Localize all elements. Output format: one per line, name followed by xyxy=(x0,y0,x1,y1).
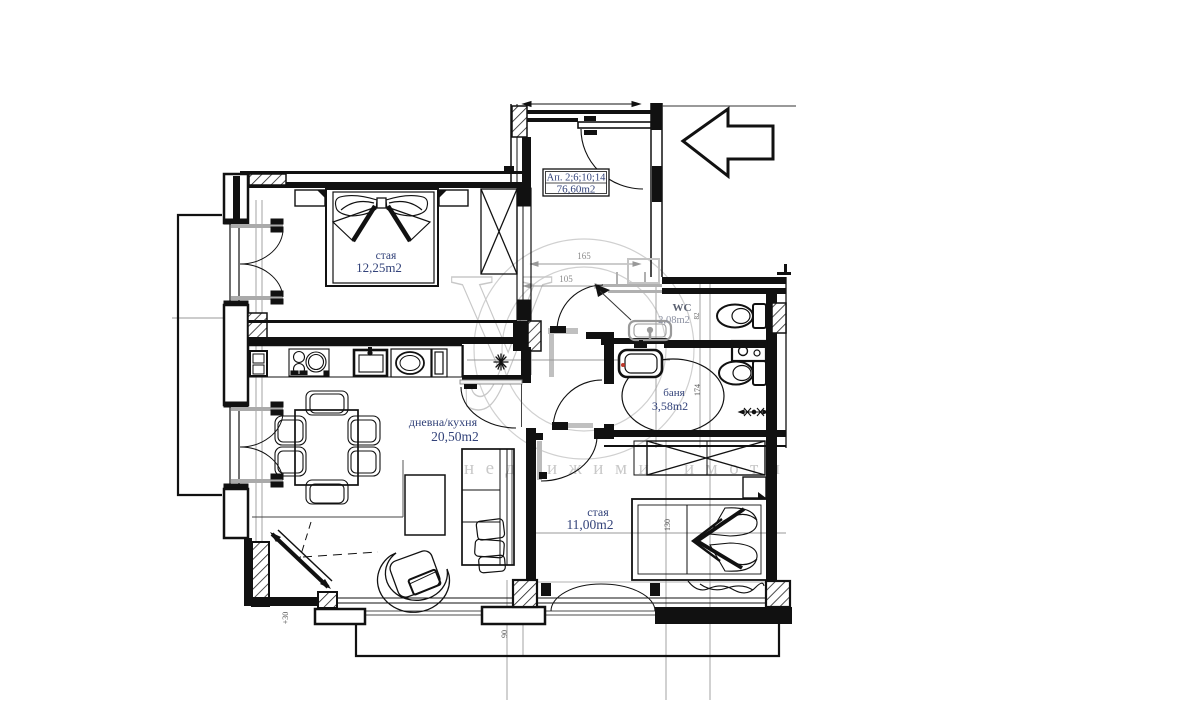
svg-text:3,58m2: 3,58m2 xyxy=(652,399,688,413)
svg-text:12,25m2: 12,25m2 xyxy=(356,260,402,275)
svg-text:165: 165 xyxy=(577,251,591,261)
svg-text:130: 130 xyxy=(663,519,672,531)
svg-text:недвижими: недвижими xyxy=(464,458,660,479)
svg-text:174: 174 xyxy=(693,384,702,396)
svg-text:76,60m2: 76,60m2 xyxy=(557,184,596,196)
svg-text:+30: +30 xyxy=(281,612,290,625)
svg-text:дневна/кухня: дневна/кухня xyxy=(409,415,478,429)
svg-text:82: 82 xyxy=(693,312,701,320)
svg-text:баня: баня xyxy=(663,387,684,399)
svg-text:20,50m2: 20,50m2 xyxy=(431,429,479,444)
svg-text:Ап. 2;6;10;14: Ап. 2;6;10;14 xyxy=(547,173,606,184)
svg-text:11,00m2: 11,00m2 xyxy=(566,517,613,532)
svg-text:105: 105 xyxy=(559,274,573,284)
svg-text:WC: WC xyxy=(673,302,692,314)
svg-text:90: 90 xyxy=(500,630,509,638)
svg-text:2,08m2: 2,08m2 xyxy=(658,315,690,326)
